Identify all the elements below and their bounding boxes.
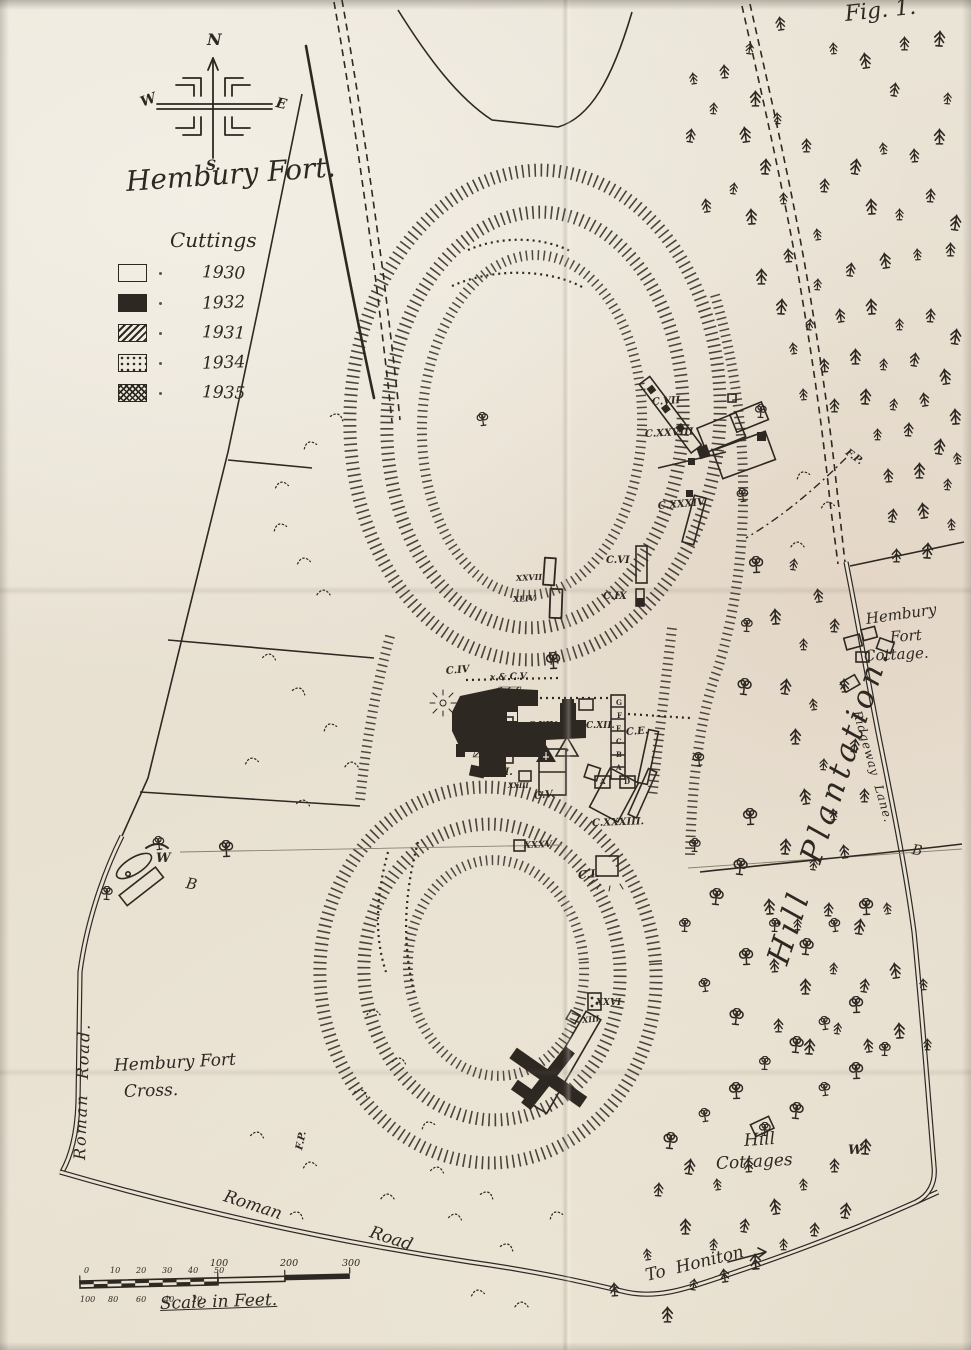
legend-year: 1934 xyxy=(202,352,246,373)
conifer-tree-icon xyxy=(950,329,962,345)
conifer-tree-icon xyxy=(710,103,718,114)
scrub-icon xyxy=(471,1289,485,1296)
conifer-tree-icon xyxy=(934,31,945,46)
legend-swatch-hatch-icon xyxy=(118,324,147,342)
conifer-tree-icon xyxy=(830,1159,839,1172)
conifer-tree-icon xyxy=(780,679,792,695)
hill-cottages-2: Cottages xyxy=(716,1152,794,1173)
cutting-x13: XIII xyxy=(582,1014,600,1024)
conifer-tree-icon xyxy=(919,393,929,407)
conifer-tree-icon xyxy=(910,353,920,367)
tree-symbols xyxy=(101,17,961,1322)
conifer-tree-icon xyxy=(926,189,935,202)
legend: Cuttings 19301932193119341935 xyxy=(118,228,288,408)
roads-and-boundaries xyxy=(60,0,964,1294)
deciduous-tree-icon xyxy=(737,678,752,695)
conifer-tree-icon xyxy=(681,1219,691,1234)
conifer-tree-icon xyxy=(713,1178,722,1190)
conifer-tree-icon xyxy=(859,53,871,69)
cutting-ce: C.E. xyxy=(626,726,649,738)
scrub-icon xyxy=(317,590,330,595)
hill-cottages-1: Hill xyxy=(743,1131,775,1150)
scrub-icon xyxy=(515,1302,528,1307)
scrub-icon xyxy=(323,722,337,731)
compass-rose xyxy=(157,58,272,158)
roman-road-left: Roman Road. xyxy=(72,1022,93,1160)
scrub-icon xyxy=(275,481,289,488)
conifer-tree-icon xyxy=(740,1219,750,1233)
conifer-tree-icon xyxy=(913,249,921,260)
conifer-tree-icon xyxy=(840,1203,852,1219)
conifer-tree-icon xyxy=(799,1179,807,1190)
cutting-c33: C.XXXIII. xyxy=(592,817,644,829)
conifer-tree-icon xyxy=(934,439,946,455)
conifer-tree-icon xyxy=(860,789,869,802)
conifer-tree-icon xyxy=(780,839,791,854)
deciduous-tree-icon xyxy=(729,1008,744,1025)
conifer-tree-icon xyxy=(684,1159,696,1175)
conifer-tree-icon xyxy=(915,463,925,478)
trench-letter-box-a: A xyxy=(600,778,605,785)
scrub-icon xyxy=(421,1120,435,1129)
deciduous-tree-icon xyxy=(663,1132,678,1149)
deciduous-tree-icon xyxy=(477,412,489,426)
conifer-tree-icon xyxy=(809,698,818,710)
conifer-tree-icon xyxy=(879,142,888,154)
deciduous-tree-icon xyxy=(849,996,863,1013)
legend-swatch-crosshatch-icon xyxy=(118,384,147,402)
trench-letter-a: A xyxy=(616,764,621,771)
conifer-tree-icon xyxy=(813,228,822,240)
legend-rows: 19301932193119341935 xyxy=(118,258,288,408)
deciduous-tree-icon xyxy=(859,898,873,915)
scrub-icon xyxy=(796,470,810,479)
scrub-icon xyxy=(251,1131,265,1138)
legend-year: 1930 xyxy=(202,262,246,283)
legend-year: 1932 xyxy=(202,292,246,313)
conifer-tree-icon xyxy=(729,182,738,194)
scale-main-tick: 100 xyxy=(210,1258,228,1269)
deciduous-tree-icon xyxy=(829,918,841,932)
cutting-c5-south: C.V. xyxy=(533,790,555,802)
conifer-tree-icon xyxy=(888,509,898,523)
scrub-icon xyxy=(303,1161,317,1168)
scale-label: Scale in Feet. xyxy=(160,1292,278,1313)
conifer-tree-icon xyxy=(910,149,919,162)
conifer-tree-icon xyxy=(760,159,771,174)
deciduous-tree-icon xyxy=(709,888,724,905)
conifer-tree-icon xyxy=(686,129,696,143)
deciduous-tree-icon xyxy=(789,1102,804,1119)
legend-row-1934: 1934 xyxy=(118,348,288,378)
trench-letter-c: C xyxy=(616,738,622,745)
scale-upper-tick: 0 xyxy=(84,1266,89,1275)
deciduous-tree-icon xyxy=(849,1062,863,1079)
scrub-icon xyxy=(290,1210,304,1219)
scale-lower-tick: 60 xyxy=(136,1295,146,1304)
conifer-tree-icon xyxy=(883,902,892,914)
conifer-tree-icon xyxy=(830,399,839,412)
scale-upper-tick: 30 xyxy=(162,1266,172,1275)
conifer-tree-icon xyxy=(944,93,952,104)
deciduous-tree-icon xyxy=(546,652,560,669)
trench-letter-b: B xyxy=(616,751,622,758)
hillfort-ramparts xyxy=(307,161,743,1175)
scrub-icon xyxy=(500,1242,514,1251)
trench-letter-g: G xyxy=(616,699,622,706)
legend-year: 1931 xyxy=(202,322,246,343)
conifer-tree-icon xyxy=(944,479,952,490)
conifer-tree-icon xyxy=(866,299,877,314)
conifer-tree-icon xyxy=(889,398,898,410)
conifer-tree-icon xyxy=(799,789,811,805)
legend-row-1932: 1932 xyxy=(118,288,288,318)
conifer-tree-icon xyxy=(776,299,787,314)
conifer-tree-icon xyxy=(757,269,767,284)
conifer-tree-icon xyxy=(896,209,903,220)
deciduous-tree-icon xyxy=(101,886,112,899)
deciduous-tree-icon xyxy=(219,840,233,857)
conifer-tree-icon xyxy=(950,215,962,231)
conifer-tree-icon xyxy=(775,17,785,31)
conifer-tree-icon xyxy=(880,359,888,370)
cutting-c7: C.VII xyxy=(652,396,681,408)
conifer-tree-icon xyxy=(820,179,829,192)
conifer-tree-icon xyxy=(789,558,798,570)
scrub-icon xyxy=(330,412,344,421)
conifer-tree-icon xyxy=(939,369,951,385)
conifer-tree-icon xyxy=(689,72,698,84)
scale-upper-tick: 20 xyxy=(136,1266,146,1275)
conifer-tree-icon xyxy=(663,1307,673,1322)
scale-lower-tick: 100 xyxy=(80,1295,95,1304)
conifer-tree-icon xyxy=(791,729,801,744)
conifer-tree-icon xyxy=(851,349,861,364)
compass-north-label: N xyxy=(207,30,222,49)
conifer-tree-icon xyxy=(784,249,793,262)
conifer-tree-icon xyxy=(739,127,751,143)
cutting-c3: C.III. xyxy=(484,768,513,778)
conifer-tree-icon xyxy=(780,1239,787,1250)
cutting-c6: C.VI xyxy=(606,556,630,566)
conifer-tree-icon xyxy=(833,1022,842,1034)
trench-letter-f: F xyxy=(617,712,622,719)
conifer-tree-icon xyxy=(746,209,757,224)
conifer-tree-icon xyxy=(860,979,870,993)
deciduous-tree-icon xyxy=(729,1082,743,1099)
conifer-tree-icon xyxy=(810,1223,819,1236)
conifer-tree-icon xyxy=(946,243,955,256)
cottage-line-2: Fort xyxy=(889,628,922,645)
conifer-tree-icon xyxy=(701,199,711,213)
conifer-tree-icon xyxy=(830,963,838,974)
cutting-x44: XLIV. xyxy=(513,594,537,603)
deciduous-tree-icon xyxy=(699,1108,711,1122)
conifer-tree-icon xyxy=(643,1248,652,1260)
deciduous-tree-icon xyxy=(153,836,165,850)
conifer-tree-icon xyxy=(879,253,891,269)
conifer-tree-icon xyxy=(801,979,811,994)
legend-tick-dot xyxy=(159,332,162,335)
scale-lower-tick: 20 xyxy=(192,1295,202,1304)
conifer-tree-icon xyxy=(814,279,822,290)
deciduous-tree-icon xyxy=(749,556,763,573)
conifer-tree-icon xyxy=(866,199,877,214)
cutting-x35: XXXV xyxy=(524,841,552,851)
conifer-tree-icon xyxy=(900,37,909,50)
scrub-icon xyxy=(263,653,277,660)
letter-b-east: B xyxy=(911,843,923,858)
legend-swatch-solid-icon xyxy=(118,294,147,312)
conifer-tree-icon xyxy=(896,319,903,330)
deciduous-tree-icon xyxy=(789,1036,804,1053)
scrub-icon xyxy=(273,522,287,531)
legend-title: Cuttings xyxy=(170,228,288,252)
conifer-tree-icon xyxy=(854,919,866,935)
conifer-tree-icon xyxy=(770,609,781,624)
conifer-tree-icon xyxy=(890,83,900,97)
cutting-c9: C.IX xyxy=(603,592,627,602)
deciduous-tree-icon xyxy=(819,1082,831,1096)
scrub-icon xyxy=(381,1194,394,1199)
well-west: W xyxy=(156,852,171,865)
conifer-tree-icon xyxy=(884,469,893,482)
scrub-icon xyxy=(449,1213,463,1220)
conifer-tree-icon xyxy=(799,389,807,400)
conifer-tree-icon xyxy=(764,899,775,914)
scrub-icon xyxy=(791,542,804,547)
scale-main-tick: 300 xyxy=(342,1258,360,1269)
scrub-icon xyxy=(245,757,259,764)
scrub-icon xyxy=(297,557,311,564)
deciduous-tree-icon xyxy=(679,918,690,931)
conifer-tree-icon xyxy=(863,1039,873,1053)
hembury-fort-map: Cuttings 19301932193119341935 N W E S. F… xyxy=(0,0,971,1350)
legend-swatch-dots-icon xyxy=(118,354,147,372)
cutting-x23: XXIII xyxy=(508,782,529,789)
deciduous-tree-icon xyxy=(879,1042,890,1055)
cutting-c1: C.I. xyxy=(577,868,599,881)
cutting-x26: XXVI xyxy=(596,999,621,1008)
conifer-tree-icon xyxy=(751,91,761,106)
cutting-x27: XXVII xyxy=(516,573,542,582)
legend-tick-dot xyxy=(159,392,162,395)
cutting-c12: C.XII. xyxy=(586,722,615,731)
conifer-tree-icon xyxy=(926,309,935,322)
legend-tick-dot xyxy=(159,302,162,305)
cutting-c14: C.XIV. xyxy=(528,722,558,731)
conifer-tree-icon xyxy=(813,589,823,603)
legend-swatch-outline-icon xyxy=(118,264,147,282)
well-east: W xyxy=(848,1144,863,1157)
legend-year: 1935 xyxy=(202,382,246,403)
legend-row-1930: 1930 xyxy=(118,258,288,288)
legend-tick-dot xyxy=(159,362,162,365)
conifer-tree-icon xyxy=(889,963,901,979)
trench-letter-box-d: D xyxy=(624,778,630,785)
deciduous-tree-icon xyxy=(759,1056,770,1069)
scrub-icon xyxy=(345,762,358,767)
scrub-icon xyxy=(303,440,317,449)
misc-marks xyxy=(378,240,690,992)
conifer-tree-icon xyxy=(835,309,845,323)
hembury-cross-2: Cross. xyxy=(124,1082,179,1101)
scrub-icon xyxy=(821,501,835,508)
conifer-tree-icon xyxy=(860,389,871,404)
conifer-tree-icon xyxy=(804,1039,815,1054)
legend-row-1931: 1931 xyxy=(118,318,288,348)
conifer-tree-icon xyxy=(950,409,961,424)
conifer-tree-icon xyxy=(745,42,754,54)
scrub-icon xyxy=(549,1210,563,1219)
scrub-icon xyxy=(480,1190,494,1199)
trench-letter-e: E xyxy=(616,725,621,732)
scale-upper-tick: 10 xyxy=(110,1266,120,1275)
cutting-c4: C.IV xyxy=(446,665,470,677)
deciduous-tree-icon xyxy=(741,618,752,631)
conifer-tree-icon xyxy=(789,342,798,354)
scrub-icon xyxy=(292,686,306,695)
scrub-icon xyxy=(431,1166,445,1173)
deciduous-tree-icon xyxy=(689,838,700,851)
conifer-tree-icon xyxy=(829,43,837,54)
conifer-tree-icon xyxy=(824,903,833,916)
scale-lower-tick: 80 xyxy=(108,1295,118,1304)
deciduous-tree-icon xyxy=(819,1016,831,1030)
deciduous-tree-icon xyxy=(739,948,753,965)
conifer-tree-icon xyxy=(947,519,955,530)
conifer-tree-icon xyxy=(802,139,811,152)
conifer-tree-icon xyxy=(720,65,729,78)
conifer-tree-icon xyxy=(774,1019,783,1032)
deciduous-tree-icon xyxy=(699,978,711,992)
conifer-tree-icon xyxy=(953,452,962,464)
conifer-tree-icon xyxy=(904,423,913,436)
cutting-c5-north: x & C.V. xyxy=(490,673,529,683)
conifer-tree-icon xyxy=(800,639,807,650)
scale-lower-tick: 40 xyxy=(164,1295,174,1304)
conifer-tree-icon xyxy=(850,159,862,175)
conifer-tree-icon xyxy=(846,263,856,277)
deciduous-tree-icon xyxy=(743,808,757,825)
conifer-tree-icon xyxy=(935,129,945,144)
conifer-tree-icon xyxy=(874,429,881,440)
legend-row-1935: 1935 xyxy=(118,378,288,408)
conifer-tree-icon xyxy=(894,1023,905,1038)
map-artwork xyxy=(0,0,971,1350)
scale-main-tick: 200 xyxy=(280,1258,298,1269)
conifer-tree-icon xyxy=(830,619,839,632)
scale-upper-tick: 40 xyxy=(188,1266,198,1275)
conifer-tree-icon xyxy=(769,1199,781,1215)
legend-tick-dot xyxy=(159,272,162,275)
conifer-tree-icon xyxy=(917,503,929,519)
conifer-tree-icon xyxy=(780,193,787,204)
conifer-tree-icon xyxy=(654,1183,663,1196)
